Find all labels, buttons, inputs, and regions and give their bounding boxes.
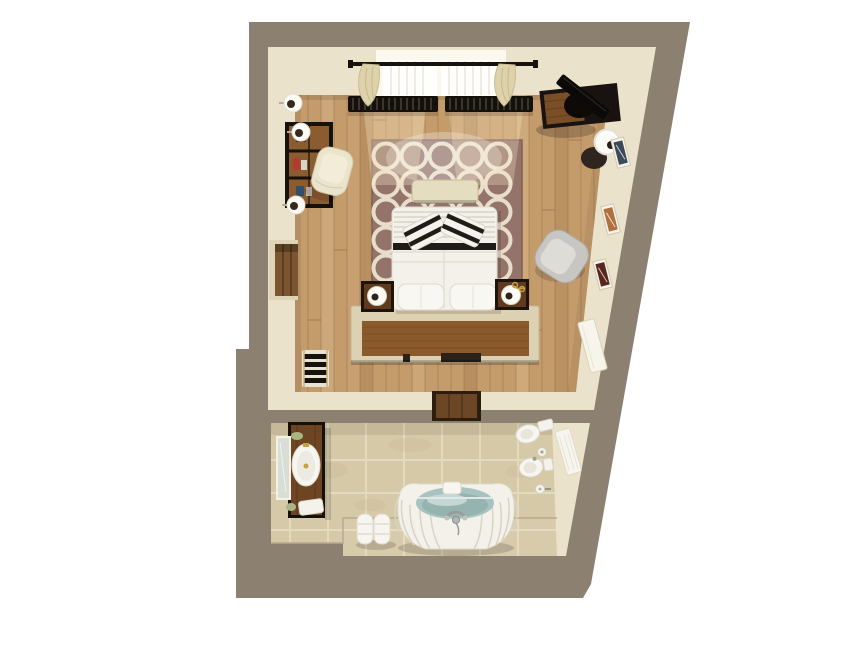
pillow-left bbox=[398, 284, 444, 310]
foot-bench bbox=[412, 180, 478, 204]
towel-radiator bbox=[302, 350, 329, 387]
bath-mat bbox=[298, 498, 324, 515]
soap-dish bbox=[291, 432, 303, 440]
tub-rim-towel bbox=[443, 482, 461, 494]
vanity-sink bbox=[292, 443, 320, 486]
headboard bbox=[351, 306, 539, 365]
nightstand-left bbox=[361, 281, 394, 312]
window-radiator-right bbox=[445, 96, 533, 116]
toilet-brush bbox=[538, 448, 547, 457]
soap-bottle bbox=[286, 503, 296, 511]
door-threshold bbox=[432, 391, 481, 421]
bathtub bbox=[395, 482, 517, 556]
floorplan-canvas bbox=[0, 0, 864, 648]
table-lamp-left bbox=[368, 287, 387, 306]
closet-niche bbox=[269, 240, 298, 300]
nightstand-right bbox=[495, 279, 529, 310]
pillow-right bbox=[450, 284, 496, 310]
bed-runner-stripe bbox=[393, 243, 496, 250]
headboard-panel bbox=[362, 321, 529, 356]
towel-stack bbox=[356, 514, 396, 550]
window-radiator-left bbox=[348, 96, 438, 116]
vanity-mirror bbox=[277, 437, 290, 499]
